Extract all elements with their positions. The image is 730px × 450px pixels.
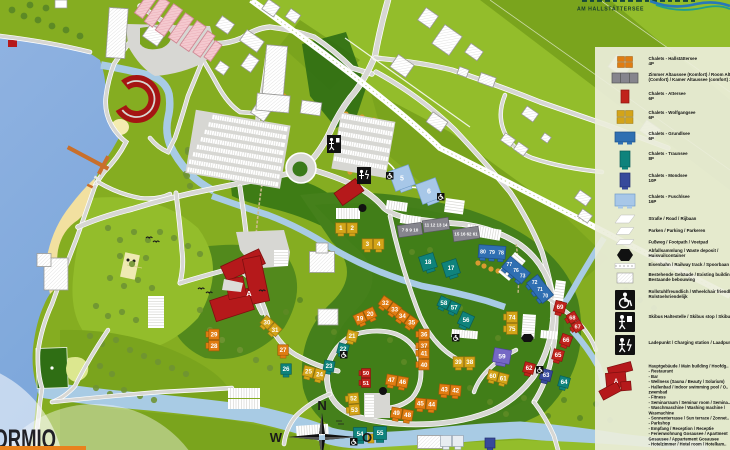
- svg-text:Straße / Road / Rijbaan: Straße / Road / Rijbaan: [649, 216, 697, 221]
- svg-text:38: 38: [466, 359, 473, 366]
- svg-text:67: 67: [574, 325, 580, 331]
- svg-text:Huisvuilcontainer: Huisvuilcontainer: [649, 253, 686, 258]
- svg-text:42: 42: [452, 388, 459, 395]
- svg-text:26: 26: [283, 366, 290, 373]
- svg-text:20: 20: [367, 311, 374, 318]
- svg-text:65: 65: [555, 352, 562, 359]
- svg-text:74: 74: [509, 314, 516, 321]
- svg-text:6P: 6P: [649, 136, 654, 141]
- svg-text:61: 61: [500, 376, 507, 383]
- svg-text:Bestaande bebouwing: Bestaande bebouwing: [649, 277, 696, 282]
- svg-text:43: 43: [441, 387, 448, 394]
- svg-text:Skibus Haltestelle / Skibus st: Skibus Haltestelle / Skibus stop / Skibu…: [649, 314, 730, 319]
- svg-text:1: 1: [339, 225, 343, 232]
- svg-text:47: 47: [388, 377, 395, 384]
- svg-text:56: 56: [463, 317, 470, 324]
- svg-text:Rolstoelvriendelijk: Rolstoelvriendelijk: [649, 294, 689, 299]
- svg-text:10P: 10P: [649, 178, 657, 183]
- svg-text:Chalets - Hallstättersee: Chalets - Hallstättersee: [649, 56, 698, 61]
- svg-text:W: W: [270, 430, 283, 445]
- svg-text:6: 6: [427, 189, 431, 196]
- svg-text:N: N: [317, 398, 326, 413]
- svg-text:5: 5: [400, 176, 404, 183]
- svg-text:60: 60: [489, 373, 496, 380]
- svg-text:76: 76: [513, 268, 519, 274]
- svg-text:70: 70: [543, 294, 549, 300]
- svg-text:72: 72: [532, 280, 538, 286]
- svg-text:4: 4: [377, 241, 381, 248]
- svg-text:6P: 6P: [649, 115, 654, 120]
- svg-text:Chalets - Traunsee: Chalets - Traunsee: [649, 151, 689, 156]
- svg-text:27: 27: [280, 347, 287, 354]
- svg-text:6P: 6P: [649, 96, 654, 101]
- svg-text:78: 78: [498, 251, 504, 257]
- svg-text:A: A: [614, 379, 619, 385]
- svg-text:29: 29: [211, 332, 218, 339]
- svg-text:36: 36: [421, 332, 428, 339]
- svg-text:80: 80: [480, 249, 486, 255]
- svg-text:A: A: [246, 289, 252, 298]
- svg-text:4P: 4P: [649, 61, 654, 66]
- svg-text:Chalets - Grundlsee: Chalets - Grundlsee: [649, 131, 691, 136]
- svg-text:64: 64: [561, 379, 568, 386]
- svg-text:25: 25: [305, 369, 312, 376]
- svg-text:30: 30: [264, 320, 271, 327]
- svg-text:46: 46: [399, 379, 406, 386]
- svg-text:15 16 62 61: 15 16 62 61: [454, 232, 478, 237]
- svg-text:19: 19: [356, 316, 363, 323]
- svg-text:63: 63: [543, 372, 550, 379]
- svg-text:71: 71: [537, 287, 543, 293]
- svg-text:28: 28: [211, 343, 218, 350]
- svg-text:44: 44: [428, 402, 435, 409]
- svg-text:Parken / Parking / Parkeren: Parken / Parking / Parkeren: [649, 228, 706, 233]
- svg-text:Fußweg / Footpath / Voetpad: Fußweg / Footpath / Voetpad: [649, 240, 709, 245]
- svg-text:59: 59: [498, 353, 506, 360]
- svg-text:31: 31: [272, 327, 279, 334]
- svg-text:24: 24: [316, 372, 323, 379]
- svg-text:49: 49: [393, 410, 400, 417]
- svg-text:Eisenbahn / Railway track / Sp: Eisenbahn / Railway track / Spoorbaan: [649, 262, 730, 267]
- svg-text:32: 32: [382, 300, 389, 307]
- svg-text:51: 51: [363, 381, 369, 387]
- svg-text:55: 55: [377, 430, 384, 437]
- svg-text:17: 17: [448, 266, 455, 272]
- svg-text:34: 34: [399, 313, 406, 320]
- svg-text:58: 58: [440, 300, 447, 307]
- svg-text:3: 3: [366, 241, 370, 248]
- svg-text:O: O: [362, 430, 372, 445]
- svg-text:73: 73: [520, 273, 526, 279]
- svg-text:11 12 13 14: 11 12 13 14: [425, 223, 449, 228]
- svg-text:79: 79: [489, 250, 495, 256]
- svg-text:45: 45: [417, 401, 424, 408]
- svg-text:8P: 8P: [649, 156, 654, 161]
- svg-text:48: 48: [404, 412, 411, 419]
- svg-text:69: 69: [557, 304, 564, 311]
- svg-text:57: 57: [451, 305, 458, 312]
- svg-text:39: 39: [455, 359, 462, 366]
- svg-text:66: 66: [563, 337, 570, 344]
- svg-text:33: 33: [391, 306, 398, 313]
- svg-text:16P: 16P: [649, 199, 657, 204]
- svg-text:23: 23: [326, 363, 333, 370]
- svg-text:18: 18: [425, 260, 432, 266]
- svg-text:53: 53: [351, 407, 358, 414]
- svg-text:50: 50: [363, 371, 369, 377]
- svg-text:Ladepunkt / Charging station /: Ladepunkt / Charging station / Laadpunt: [649, 340, 730, 345]
- svg-text:Chalets - Wolfgangsee: Chalets - Wolfgangsee: [649, 110, 697, 115]
- svg-text:(Comfort) / Kamer Altaussee (c: (Comfort) / Kamer Altaussee (comfort) 2: [649, 77, 730, 82]
- svg-text:41: 41: [421, 351, 428, 358]
- svg-text:68: 68: [569, 315, 575, 321]
- svg-text:- Hotelzimmer / Hotel room / H: - Hotelzimmer / Hotel room / Hotelkam..: [649, 442, 727, 447]
- svg-text:77: 77: [507, 262, 513, 268]
- svg-text:52: 52: [350, 396, 357, 403]
- svg-text:62: 62: [526, 365, 533, 372]
- svg-text:21: 21: [349, 333, 356, 340]
- svg-text:40: 40: [421, 362, 428, 369]
- svg-text:75: 75: [509, 326, 516, 333]
- svg-text:Chalets - Attersee: Chalets - Attersee: [649, 91, 687, 96]
- svg-text:2: 2: [350, 225, 354, 232]
- svg-text:AM HALLSTÄTTERSEE: AM HALLSTÄTTERSEE: [577, 6, 644, 13]
- svg-text:7 8 9 10: 7 8 9 10: [402, 228, 419, 233]
- svg-text:35: 35: [408, 319, 415, 326]
